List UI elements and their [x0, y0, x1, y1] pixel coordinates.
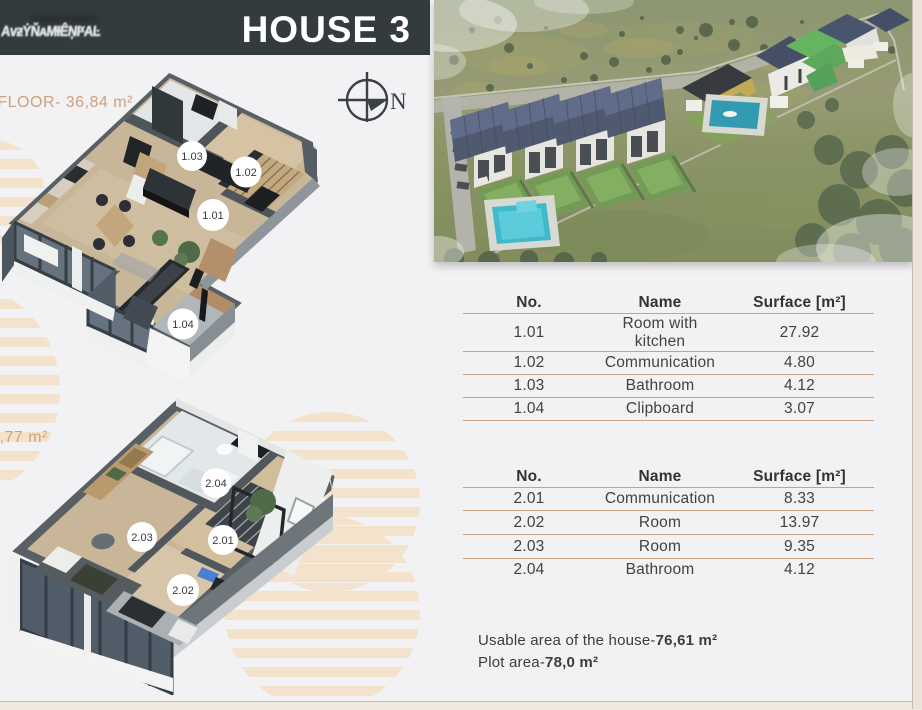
svg-text:1.01: 1.01	[202, 210, 223, 222]
svg-text:N: N	[390, 89, 407, 114]
svg-text:2.04: 2.04	[205, 478, 226, 490]
svg-text:2.03: 2.03	[131, 532, 152, 544]
svg-text:2.01: 2.01	[212, 535, 233, 547]
svg-text:1.04: 1.04	[172, 319, 193, 331]
svg-text:2.02: 2.02	[172, 585, 193, 597]
svg-text:1.03: 1.03	[181, 151, 202, 163]
svg-text:1.02: 1.02	[235, 167, 256, 179]
